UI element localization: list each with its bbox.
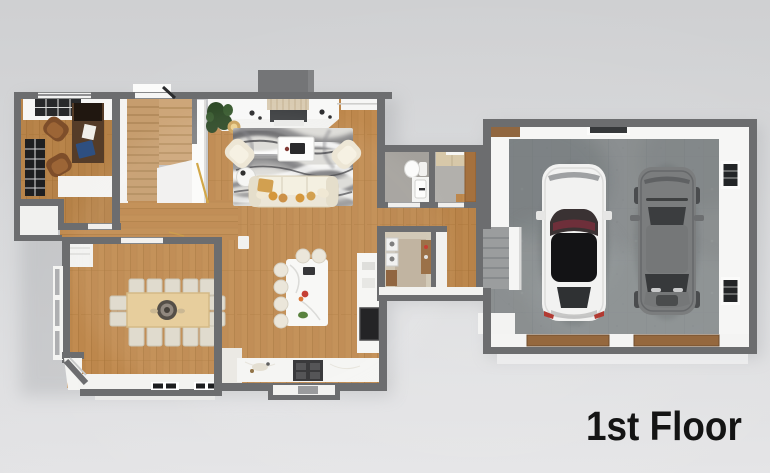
- svg-text:1st Floor: 1st Floor: [586, 404, 742, 449]
